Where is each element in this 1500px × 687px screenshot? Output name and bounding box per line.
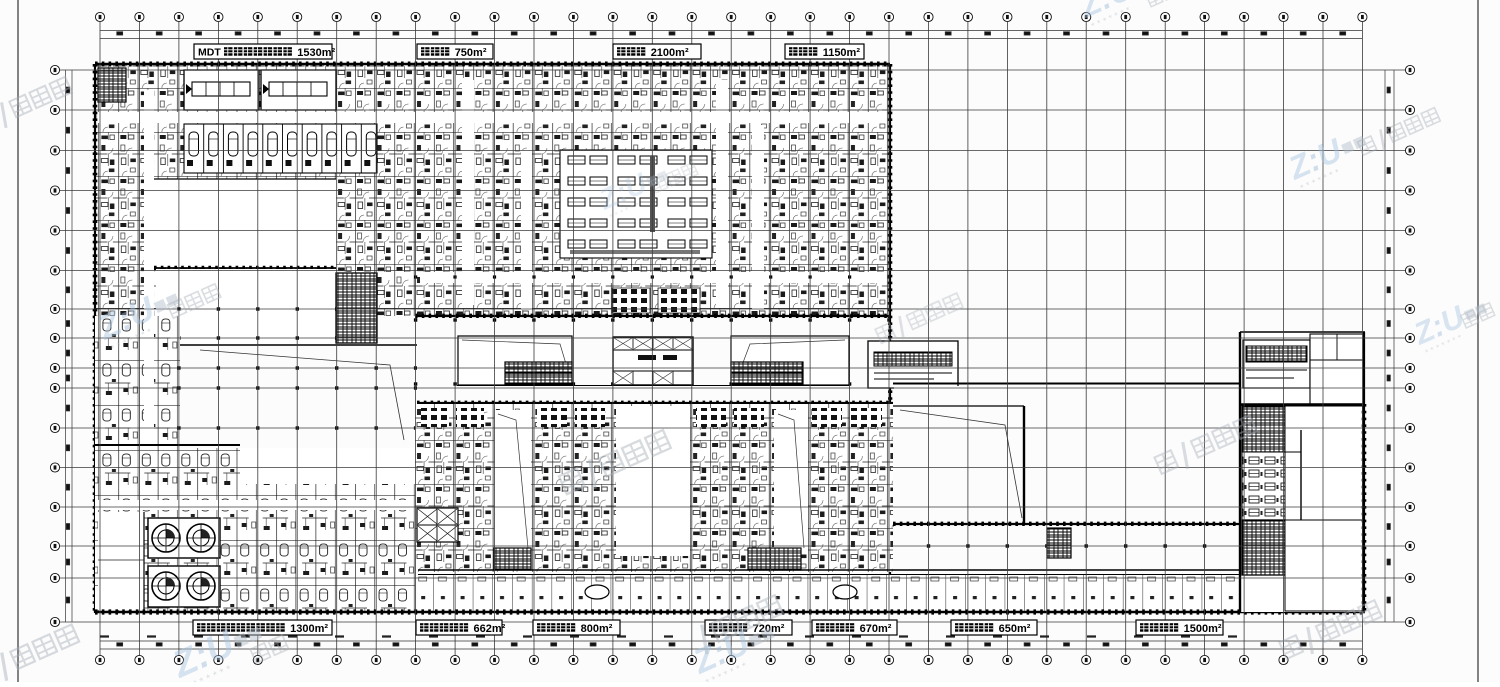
svg-text:1500m²: 1500m² xyxy=(1184,623,1222,635)
svg-text:1300m²: 1300m² xyxy=(290,623,328,635)
svg-text:750m²: 750m² xyxy=(455,47,487,59)
svg-text:650m²: 650m² xyxy=(999,623,1031,635)
svg-text:800m²: 800m² xyxy=(581,623,613,635)
svg-text:2100m²: 2100m² xyxy=(651,47,689,59)
svg-text:662m²: 662m² xyxy=(474,623,506,635)
svg-text:MDT: MDT xyxy=(198,47,221,59)
svg-text:670m²: 670m² xyxy=(860,623,892,635)
svg-text:1530m²: 1530m² xyxy=(297,47,335,59)
svg-text:1150m²: 1150m² xyxy=(823,47,861,59)
